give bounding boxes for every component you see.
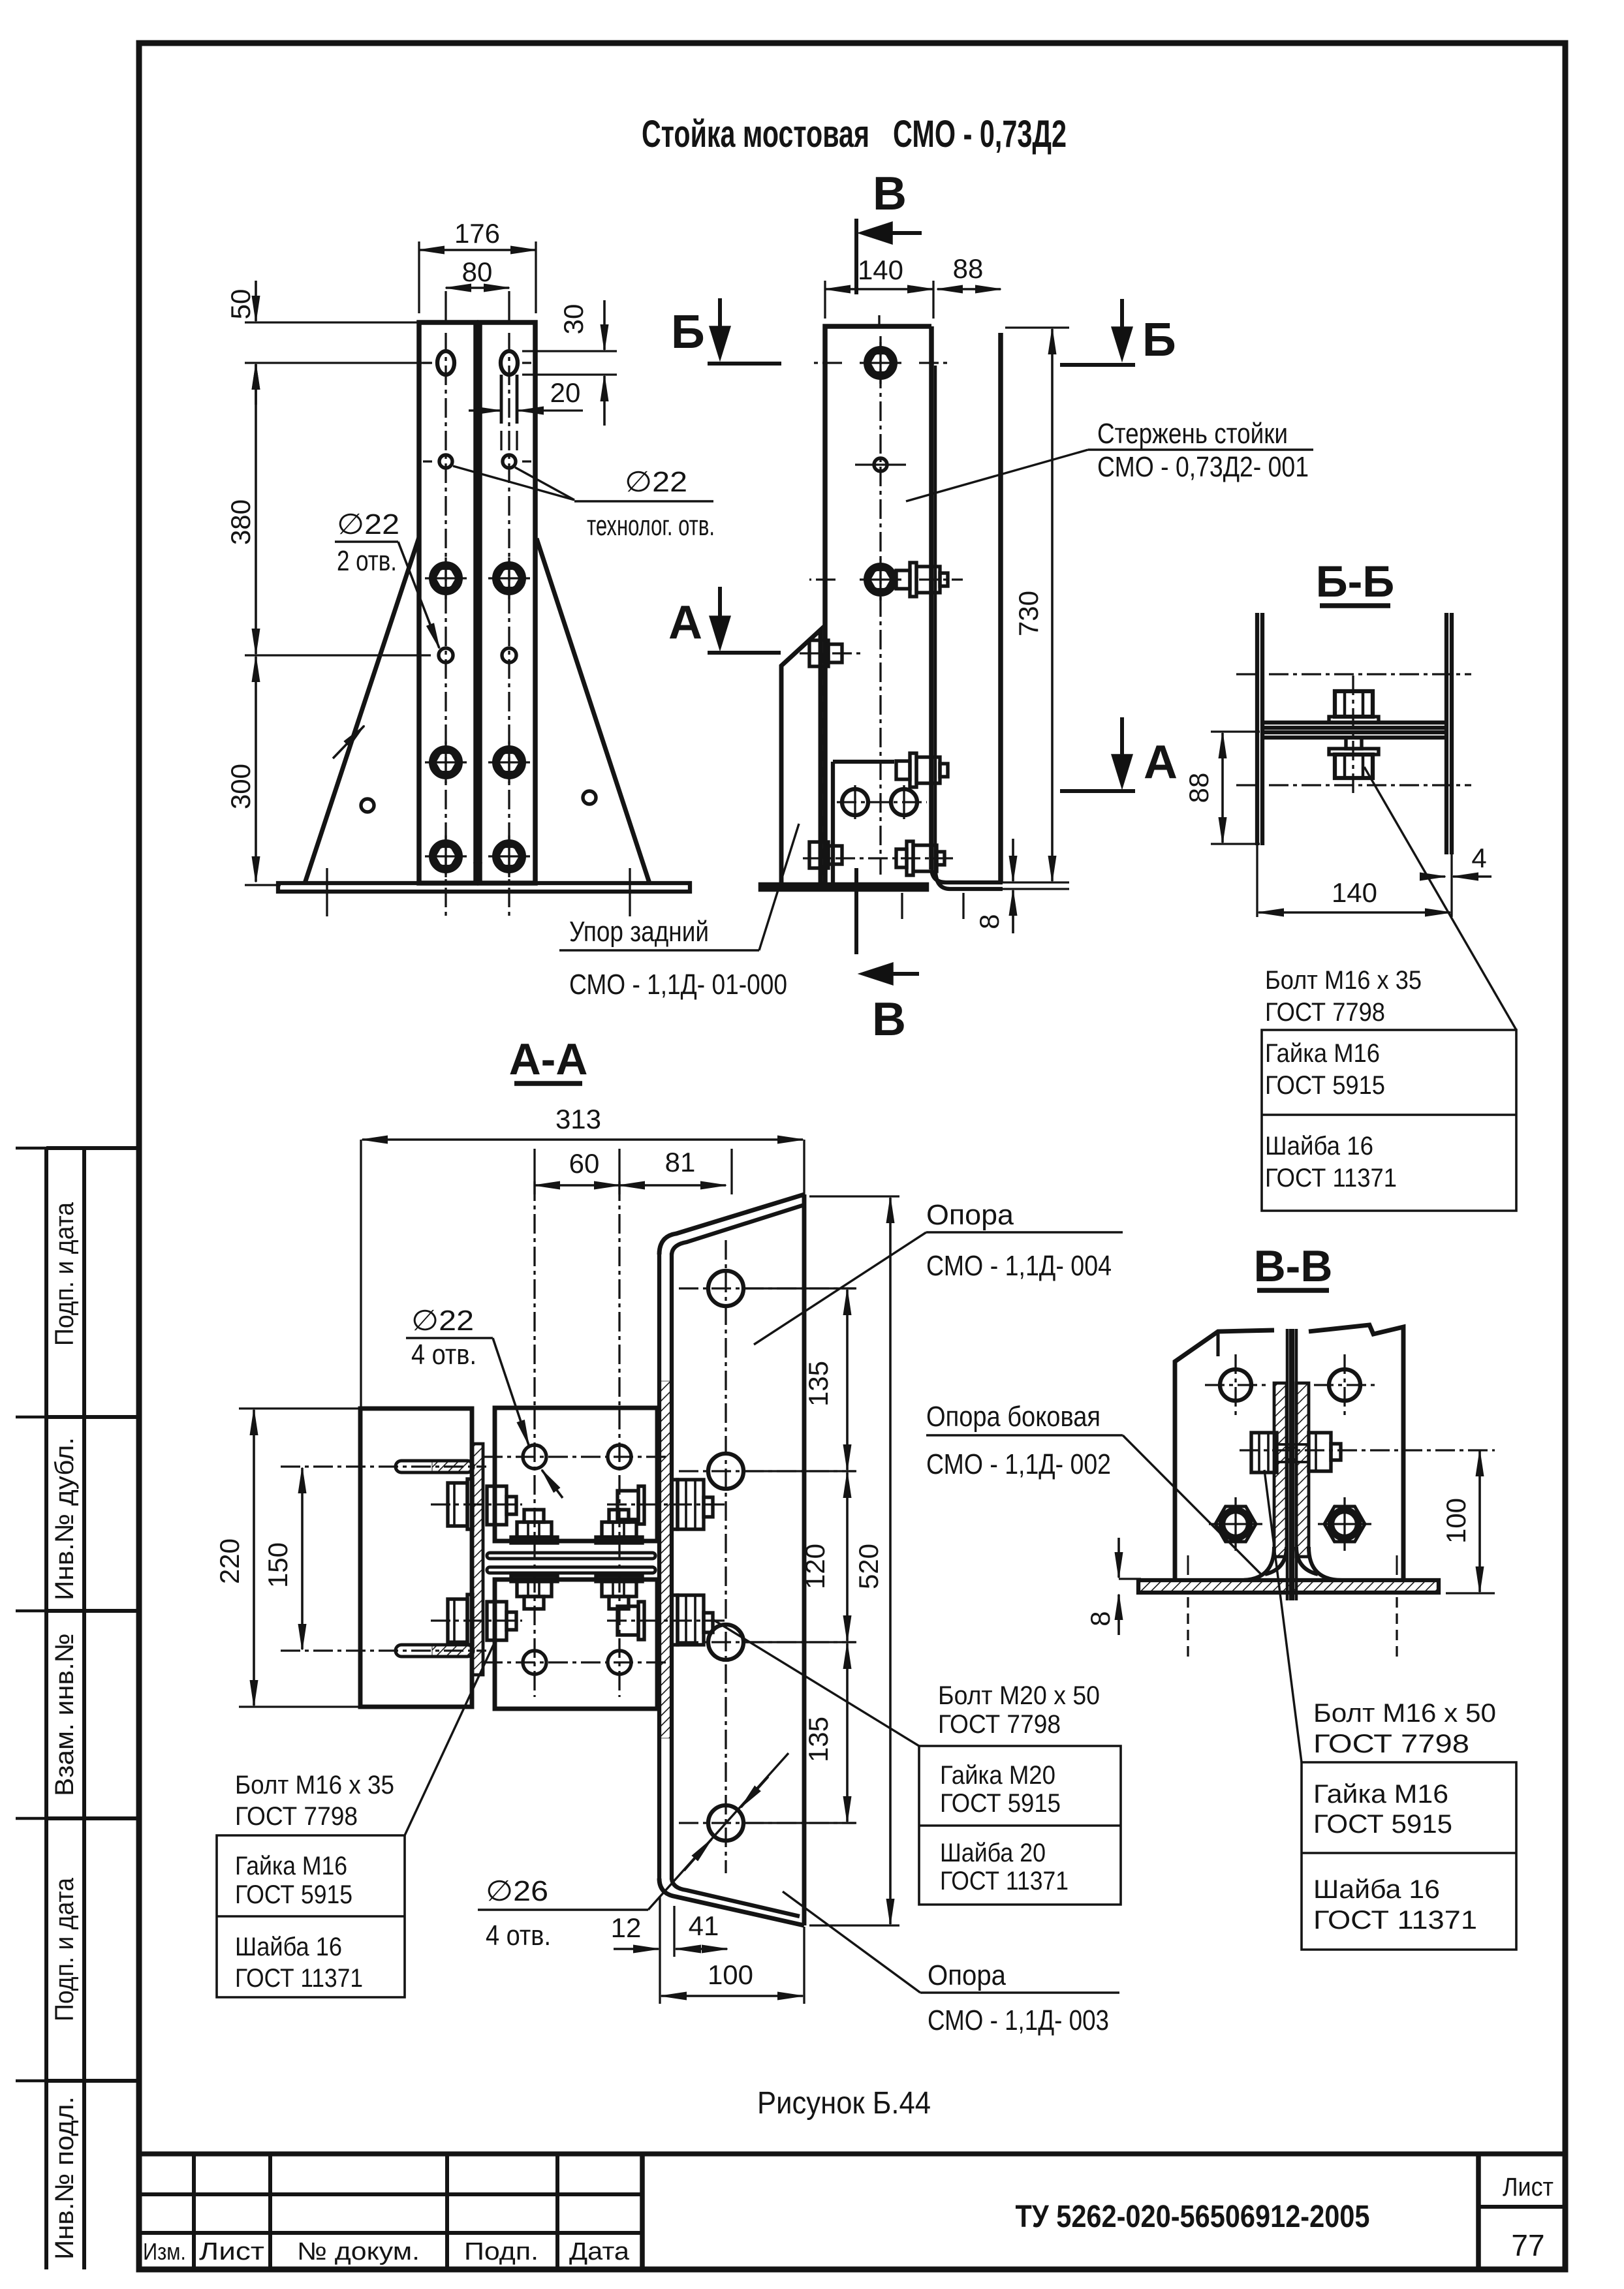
svg-text:88: 88 [953, 253, 984, 284]
svg-text:Рисунок Б.44: Рисунок Б.44 [757, 2086, 931, 2121]
svg-text:4 отв.: 4 отв. [486, 1920, 551, 1952]
svg-text:Болт М16 х 35: Болт М16 х 35 [235, 1771, 394, 1799]
svg-text:Подп. и дата: Подп. и дата [50, 1877, 79, 2021]
svg-text:Шайба 20: Шайба 20 [940, 1839, 1046, 1867]
svg-text:Шайба 16: Шайба 16 [1265, 1132, 1373, 1160]
svg-text:Б-Б: Б-Б [1316, 557, 1394, 606]
svg-text:Опора боковая: Опора боковая [926, 1401, 1101, 1433]
svg-text:Инв.№ дубл.: Инв.№ дубл. [50, 1437, 79, 1600]
svg-text:∅22: ∅22 [625, 466, 687, 498]
svg-text:А: А [668, 597, 702, 649]
svg-text:20: 20 [550, 377, 581, 408]
svg-text:Изм.: Изм. [143, 2238, 186, 2265]
svg-text:135: 135 [803, 1717, 834, 1762]
svg-text:Дата: Дата [569, 2238, 630, 2266]
svg-text:СМО - 0,73Д2- 001: СМО - 0,73Д2- 001 [1097, 451, 1309, 483]
svg-text:∅26: ∅26 [486, 1875, 548, 1907]
svg-text:Б: Б [671, 306, 705, 358]
svg-text:А-А: А-А [509, 1035, 588, 1084]
svg-text:220: 220 [214, 1538, 245, 1584]
svg-text:ГОСТ 7798: ГОСТ 7798 [1313, 1730, 1469, 1758]
svg-text:Стержень стойки: Стержень стойки [1097, 418, 1288, 450]
svg-text:2 отв.: 2 отв. [337, 545, 397, 577]
svg-text:Стойка мостовая: Стойка мостовая [642, 113, 869, 155]
svg-text:А: А [1144, 736, 1178, 788]
svg-text:В: В [873, 168, 907, 220]
svg-text:№ докум.: № докум. [297, 2238, 420, 2266]
svg-text:ГОСТ 11371: ГОСТ 11371 [1265, 1164, 1397, 1192]
svg-text:140: 140 [1332, 877, 1377, 908]
svg-text:Подп. и дата: Подп. и дата [50, 1202, 79, 1346]
svg-text:12: 12 [611, 1912, 642, 1943]
svg-text:Шайба 16: Шайба 16 [1313, 1875, 1440, 1904]
svg-text:Гайка М16: Гайка М16 [235, 1852, 347, 1880]
svg-text:100: 100 [708, 1959, 753, 1990]
svg-text:Инв.№ подл.: Инв.№ подл. [50, 2096, 79, 2260]
svg-text:100: 100 [1441, 1498, 1471, 1544]
svg-text:Болт М16 х 50: Болт М16 х 50 [1313, 1699, 1496, 1728]
svg-text:8: 8 [1085, 1611, 1116, 1626]
svg-text:176: 176 [454, 218, 500, 249]
svg-text:Упор задний: Упор задний [569, 916, 709, 948]
svg-text:СМО - 1,1Д- 01-000: СМО - 1,1Д- 01-000 [569, 969, 787, 1001]
svg-text:ГОСТ 7798: ГОСТ 7798 [235, 1802, 358, 1831]
svg-text:СМО - 1,1Д- 003: СМО - 1,1Д- 003 [928, 2004, 1109, 2036]
svg-text:60: 60 [569, 1148, 600, 1179]
svg-text:Лист: Лист [199, 2238, 264, 2266]
svg-text:120: 120 [800, 1544, 830, 1589]
svg-text:Взам. инв.№: Взам. инв.№ [50, 1633, 79, 1796]
svg-text:ГОСТ 5915: ГОСТ 5915 [1313, 1810, 1452, 1839]
svg-text:Болт М16 х 35: Болт М16 х 35 [1265, 966, 1422, 995]
svg-text:СМО - 1,1Д- 002: СМО - 1,1Д- 002 [926, 1448, 1111, 1480]
svg-text:81: 81 [665, 1147, 696, 1177]
svg-text:41: 41 [689, 1910, 719, 1941]
svg-text:Гайка М16: Гайка М16 [1265, 1039, 1380, 1068]
svg-text:технолог. отв.: технолог. отв. [587, 510, 715, 542]
svg-text:30: 30 [558, 304, 589, 335]
svg-text:Гайка М20: Гайка М20 [940, 1761, 1055, 1790]
svg-text:88: 88 [1183, 773, 1214, 803]
svg-text:4: 4 [1471, 843, 1486, 873]
svg-text:ГОСТ 7798: ГОСТ 7798 [1265, 998, 1385, 1027]
svg-text:8: 8 [974, 914, 1005, 929]
svg-text:ГОСТ 5915: ГОСТ 5915 [940, 1789, 1061, 1818]
svg-text:Подп.: Подп. [464, 2238, 539, 2266]
svg-text:В: В [872, 993, 906, 1046]
svg-text:520: 520 [853, 1544, 884, 1589]
svg-text:300: 300 [225, 764, 256, 809]
svg-text:140: 140 [858, 255, 903, 285]
svg-text:СМО - 0,73Д2: СМО - 0,73Д2 [893, 113, 1067, 155]
svg-text:150: 150 [262, 1542, 293, 1588]
svg-text:50: 50 [225, 289, 256, 320]
svg-text:77: 77 [1511, 2228, 1544, 2262]
svg-text:80: 80 [462, 257, 493, 287]
svg-text:313: 313 [555, 1104, 601, 1134]
svg-text:ГОСТ 11371: ГОСТ 11371 [1313, 1906, 1477, 1935]
svg-text:Б: Б [1142, 314, 1176, 366]
svg-text:135: 135 [803, 1361, 834, 1407]
svg-text:Лист: Лист [1503, 2173, 1554, 2202]
svg-text:730: 730 [1013, 591, 1044, 636]
svg-text:ГОСТ 11371: ГОСТ 11371 [940, 1867, 1069, 1895]
svg-text:4 отв.: 4 отв. [411, 1339, 476, 1371]
svg-text:∅22: ∅22 [411, 1305, 474, 1337]
svg-text:ГОСТ 7798: ГОСТ 7798 [938, 1710, 1061, 1739]
svg-text:380: 380 [225, 499, 256, 545]
svg-text:В-В: В-В [1254, 1241, 1333, 1291]
svg-text:ГОСТ 5915: ГОСТ 5915 [235, 1880, 352, 1909]
svg-text:∅22: ∅22 [337, 508, 399, 540]
svg-text:ГОСТ 5915: ГОСТ 5915 [1265, 1071, 1385, 1100]
svg-text:ТУ 5262-020-56506912-2005: ТУ 5262-020-56506912-2005 [1016, 2200, 1370, 2234]
svg-text:Болт М20 х 50: Болт М20 х 50 [938, 1681, 1100, 1710]
svg-text:Опора: Опора [928, 1959, 1006, 1991]
svg-text:ГОСТ 11371: ГОСТ 11371 [235, 1964, 363, 1993]
svg-text:СМО - 1,1Д- 004: СМО - 1,1Д- 004 [926, 1250, 1112, 1282]
svg-text:Опора: Опора [926, 1199, 1014, 1231]
svg-text:Шайба 16: Шайба 16 [235, 1933, 342, 1961]
svg-text:Гайка М16: Гайка М16 [1313, 1780, 1448, 1809]
